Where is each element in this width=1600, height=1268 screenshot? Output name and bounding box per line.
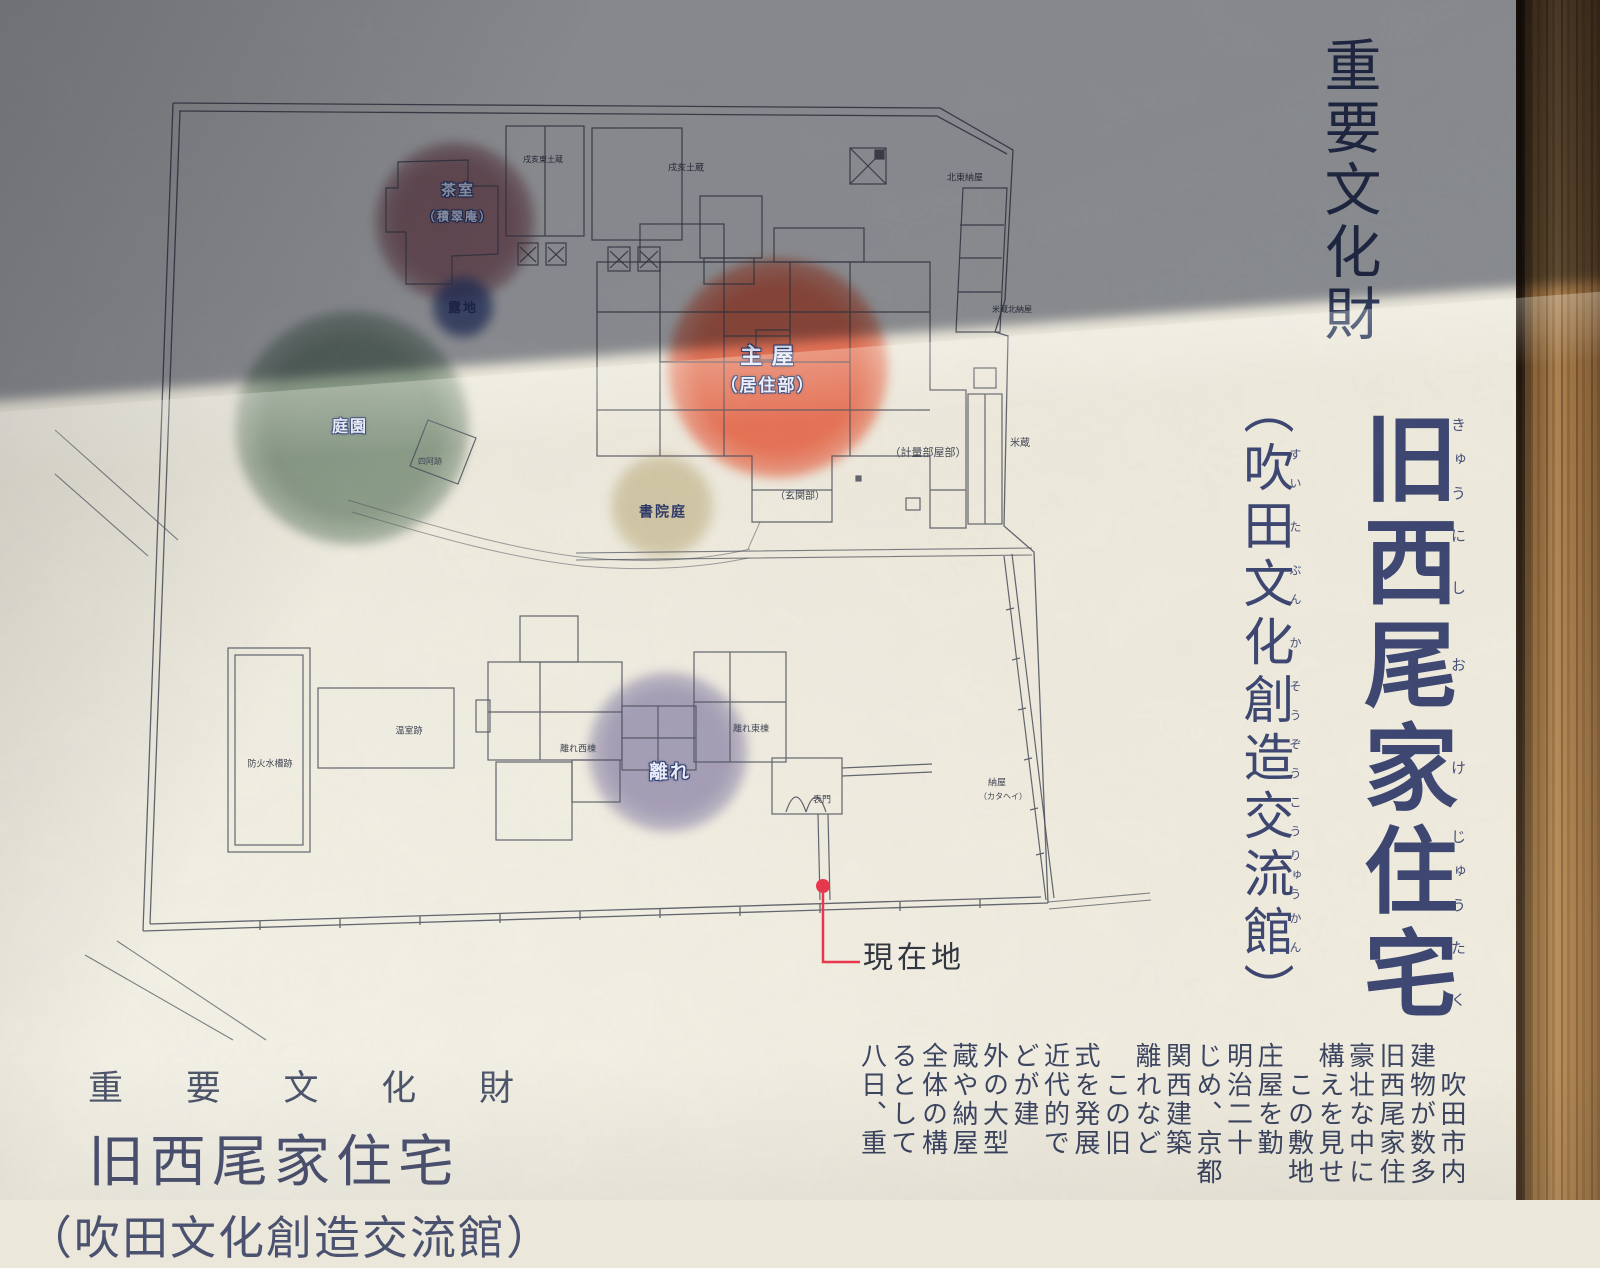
sign-board-paper: 茶室（積翠庵）戌亥東土蔵戌亥土蔵北東納屋米蔵北納屋主 屋（居住部）庭園露地四阿跡… <box>0 0 1522 1200</box>
map-label: 離れ東棟 <box>733 724 769 733</box>
main-house-buildings <box>410 224 1002 528</box>
description-column: この旧 <box>1100 1042 1131 1200</box>
map-label: 離れ <box>649 763 691 783</box>
furigana: か <box>1288 615 1302 673</box>
description-column: 外の大型 <box>978 1042 1009 1200</box>
map-label: 米蔵 <box>1010 439 1030 450</box>
map-label: 表門 <box>813 795 831 804</box>
description-column: 近代的で <box>1039 1042 1070 1200</box>
furigana: ぶん <box>1288 557 1302 615</box>
map-label: （居住部） <box>721 377 816 395</box>
description-column: 関西建築 <box>1161 1042 1192 1200</box>
title-character: 交こう <box>1235 789 1291 847</box>
map-label: 北東納屋 <box>947 173 983 182</box>
title-character: 流りゅう <box>1235 847 1291 905</box>
furigana: こう <box>1288 789 1302 847</box>
description-column: 八日、重 <box>856 1042 887 1200</box>
furigana: ぞう <box>1288 731 1302 789</box>
map-label: （カタヘイ） <box>979 793 1027 801</box>
title-character: 家け <box>1350 719 1454 822</box>
footer-title-block: 重 要 文 化 財 旧西尾家住宅 （吹田文化創造交流館） <box>88 1060 554 1268</box>
site-boundary <box>143 103 1048 931</box>
south-buildings <box>228 554 1054 900</box>
furigana: そう <box>1288 673 1302 731</box>
description-column: 旧西尾家住 <box>1375 1042 1406 1200</box>
roads-outside <box>55 430 1151 1040</box>
description-column: 構えを見せ <box>1314 1042 1345 1200</box>
description-text: 吹田市内建物が数多旧西尾家住豪壮な中に構えを見せこの敷地庄屋を勤明治二十じめ、京… <box>856 1042 1466 1200</box>
description-column: 離れなど <box>1131 1042 1162 1200</box>
furigana: たく <box>1449 925 1465 1028</box>
furigana: た <box>1288 499 1302 557</box>
main-title: 旧きゅう西にし尾お家け住じゅう宅たく <box>1334 410 1470 1028</box>
description-column: 式を発展 <box>1070 1042 1101 1200</box>
title-character: 造ぞう <box>1235 731 1291 789</box>
map-label: 露地 <box>448 301 478 315</box>
map-label: 納屋 <box>988 778 1006 787</box>
title-character: 旧きゅう <box>1350 410 1454 513</box>
furigana: じゅう <box>1449 822 1465 925</box>
title-character: 館かん <box>1235 905 1291 963</box>
description-column: 豪壮な中に <box>1344 1042 1375 1200</box>
north-buildings <box>386 126 1007 332</box>
description-column: 庄屋を勤 <box>1253 1042 1284 1200</box>
map-label: 庭園 <box>332 420 368 437</box>
description-column: 明治二十 <box>1222 1042 1253 1200</box>
furigana: け <box>1449 719 1465 822</box>
description-column: じめ、京都 <box>1192 1042 1223 1200</box>
map-label: （積翠庵） <box>423 211 493 224</box>
map-label: 戌亥土蔵 <box>668 163 704 172</box>
description-column: るとして <box>887 1042 918 1200</box>
furigana: りゅう <box>1288 847 1302 905</box>
description-column: 建物が数多 <box>1405 1042 1436 1200</box>
map-label: 主 屋 <box>740 344 796 367</box>
current-location-marker <box>816 879 860 962</box>
footer-subtitle: （吹田文化創造交流館） <box>26 1202 554 1268</box>
furigana: にし <box>1449 513 1465 616</box>
map-label: 防火水槽跡 <box>247 759 292 768</box>
map-label: 茶室 <box>441 184 475 200</box>
title-character: 尾お <box>1350 616 1454 719</box>
map-label: 戌亥東土蔵 <box>523 156 563 164</box>
furigana: すい <box>1288 441 1302 499</box>
title-character: 吹すい <box>1235 441 1291 499</box>
map-label: 米蔵北納屋 <box>992 306 1032 314</box>
subtitle: （吹すい田た文ぶん化か創そう造ぞう交こう流りゅう館かん） <box>1226 383 1301 1021</box>
photo-of-information-sign: { "sign": { "header_vertical": "重要文化財", … <box>0 0 1600 1200</box>
footer-heading: 重 要 文 化 財 <box>88 1060 554 1111</box>
furigana: かん <box>1288 905 1302 963</box>
description-column: 蔵や納屋 <box>948 1042 979 1200</box>
map-label: （玄関部） <box>775 492 825 503</box>
map-label: 書院庭 <box>639 507 687 522</box>
map-label: 温室跡 <box>395 726 422 735</box>
map-label: 離れ西棟 <box>560 744 596 753</box>
description-column: どが建 <box>1009 1042 1040 1200</box>
furigana: お <box>1449 616 1465 719</box>
title-character: 宅たく <box>1350 925 1454 1028</box>
map-label: （計量部屋部） <box>890 448 967 460</box>
title-character: 文ぶん <box>1235 557 1291 615</box>
description-column: この敷地 <box>1283 1042 1314 1200</box>
title-character: 田た <box>1235 499 1291 557</box>
wooden-frame <box>1516 0 1600 1200</box>
title-character: 住じゅう <box>1350 822 1454 925</box>
description-column: 吹田市内 <box>1436 1042 1467 1200</box>
current-location-label: 現在地 <box>863 942 965 974</box>
footer-title: 旧西尾家住宅 <box>88 1117 554 1198</box>
title-character: 西にし <box>1350 513 1454 616</box>
furigana: きゅう <box>1449 410 1465 513</box>
title-character: 創そう <box>1235 673 1291 731</box>
important-cultural-property-heading: 重要文化財 <box>1306 36 1388 346</box>
title-character: 化か <box>1235 615 1291 673</box>
description-column: 全体の構 <box>917 1042 948 1200</box>
map-label: 四阿跡 <box>418 458 442 466</box>
